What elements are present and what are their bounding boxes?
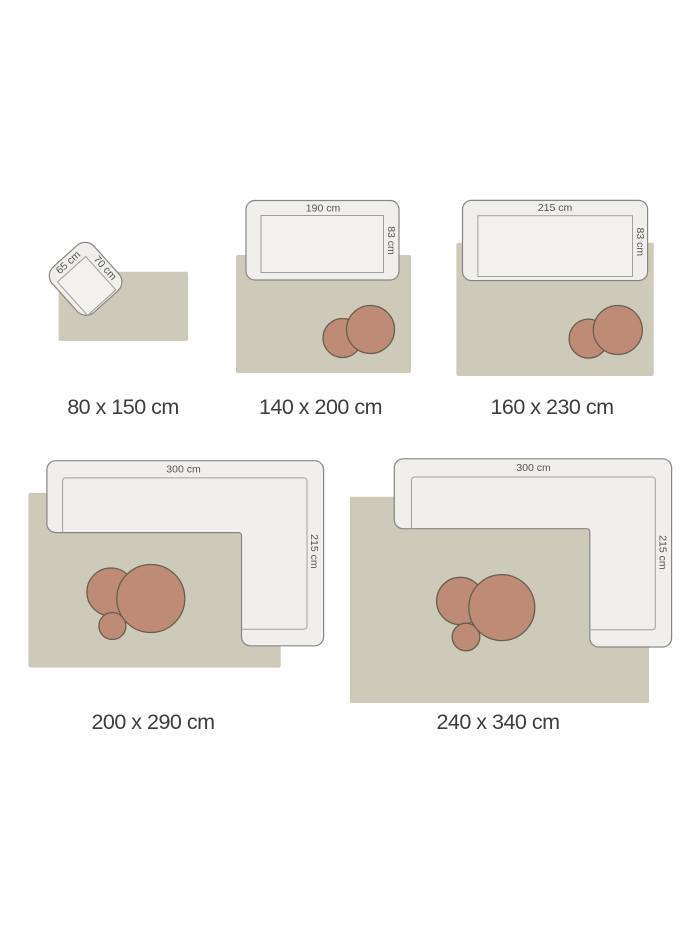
svg-text:240 x 340 cm: 240 x 340 cm: [436, 710, 559, 734]
svg-text:215 cm: 215 cm: [308, 534, 320, 569]
svg-text:200 x 290 cm: 200 x 290 cm: [91, 710, 214, 734]
svg-text:83 cm: 83 cm: [634, 228, 646, 257]
svg-text:190 cm: 190 cm: [306, 203, 341, 215]
svg-text:300 cm: 300 cm: [166, 463, 201, 475]
svg-text:80 x 150 cm: 80 x 150 cm: [67, 395, 179, 419]
svg-text:140 x 200 cm: 140 x 200 cm: [259, 395, 382, 419]
svg-text:160 x 230 cm: 160 x 230 cm: [490, 395, 613, 419]
svg-text:83 cm: 83 cm: [385, 226, 397, 255]
svg-text:215 cm: 215 cm: [656, 535, 668, 570]
svg-text:300 cm: 300 cm: [516, 462, 551, 474]
svg-text:215 cm: 215 cm: [538, 202, 573, 214]
